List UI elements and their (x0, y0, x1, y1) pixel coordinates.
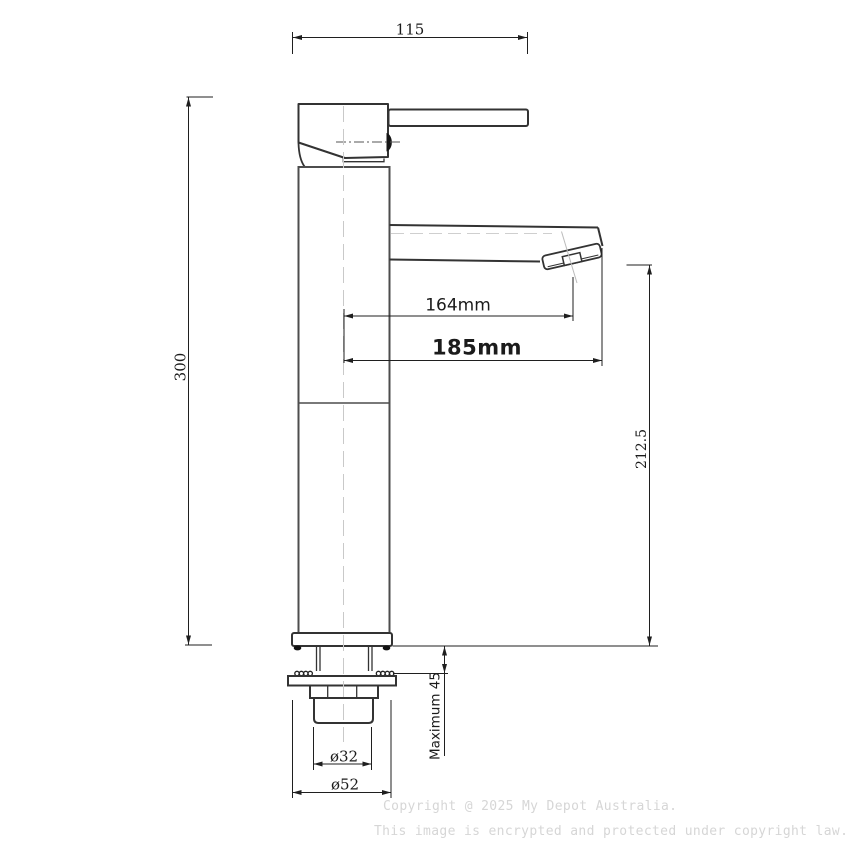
dim-spout-reach-label: 164mm (425, 298, 491, 315)
dim-thread-diameter-label: ø32 (330, 750, 358, 765)
dim-overall-height-label: 300 (174, 353, 189, 382)
lock-flange (288, 676, 396, 686)
dim-base-diameter-label: ø52 (331, 778, 359, 793)
watermark-line-1: Copyright @ 2025 My Depot Australia. (383, 799, 677, 814)
gasket-right (383, 646, 391, 651)
dim-overall-reach-label: 185mm (432, 338, 522, 359)
dim-max-mounting-label: Maximum 45 (429, 672, 443, 760)
dimension-lines (185, 32, 658, 798)
drawing-svg (0, 0, 850, 850)
faucet-base (288, 633, 396, 723)
technical-drawing: 115 300 164mm 185mm 212.5 Maximum 45 ø32… (0, 0, 850, 850)
gasket-left (294, 646, 302, 651)
faucet-lever (389, 110, 529, 127)
dim-outlet-height-label: 212.5 (635, 429, 649, 469)
dim-handle-width-label: 115 (396, 23, 425, 38)
watermark-line-2: This image is encrypted and protected un… (374, 824, 848, 839)
